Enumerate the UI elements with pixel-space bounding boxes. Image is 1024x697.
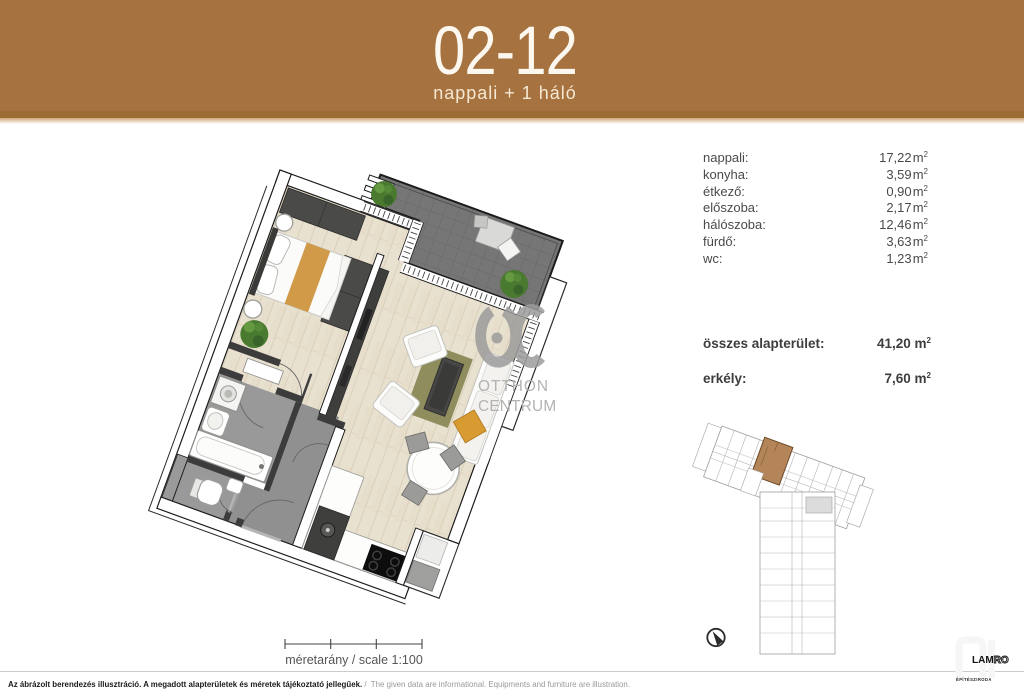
svg-text:CENTRUM: CENTRUM <box>478 398 556 415</box>
svg-text:OTTHON: OTTHON <box>478 378 549 395</box>
